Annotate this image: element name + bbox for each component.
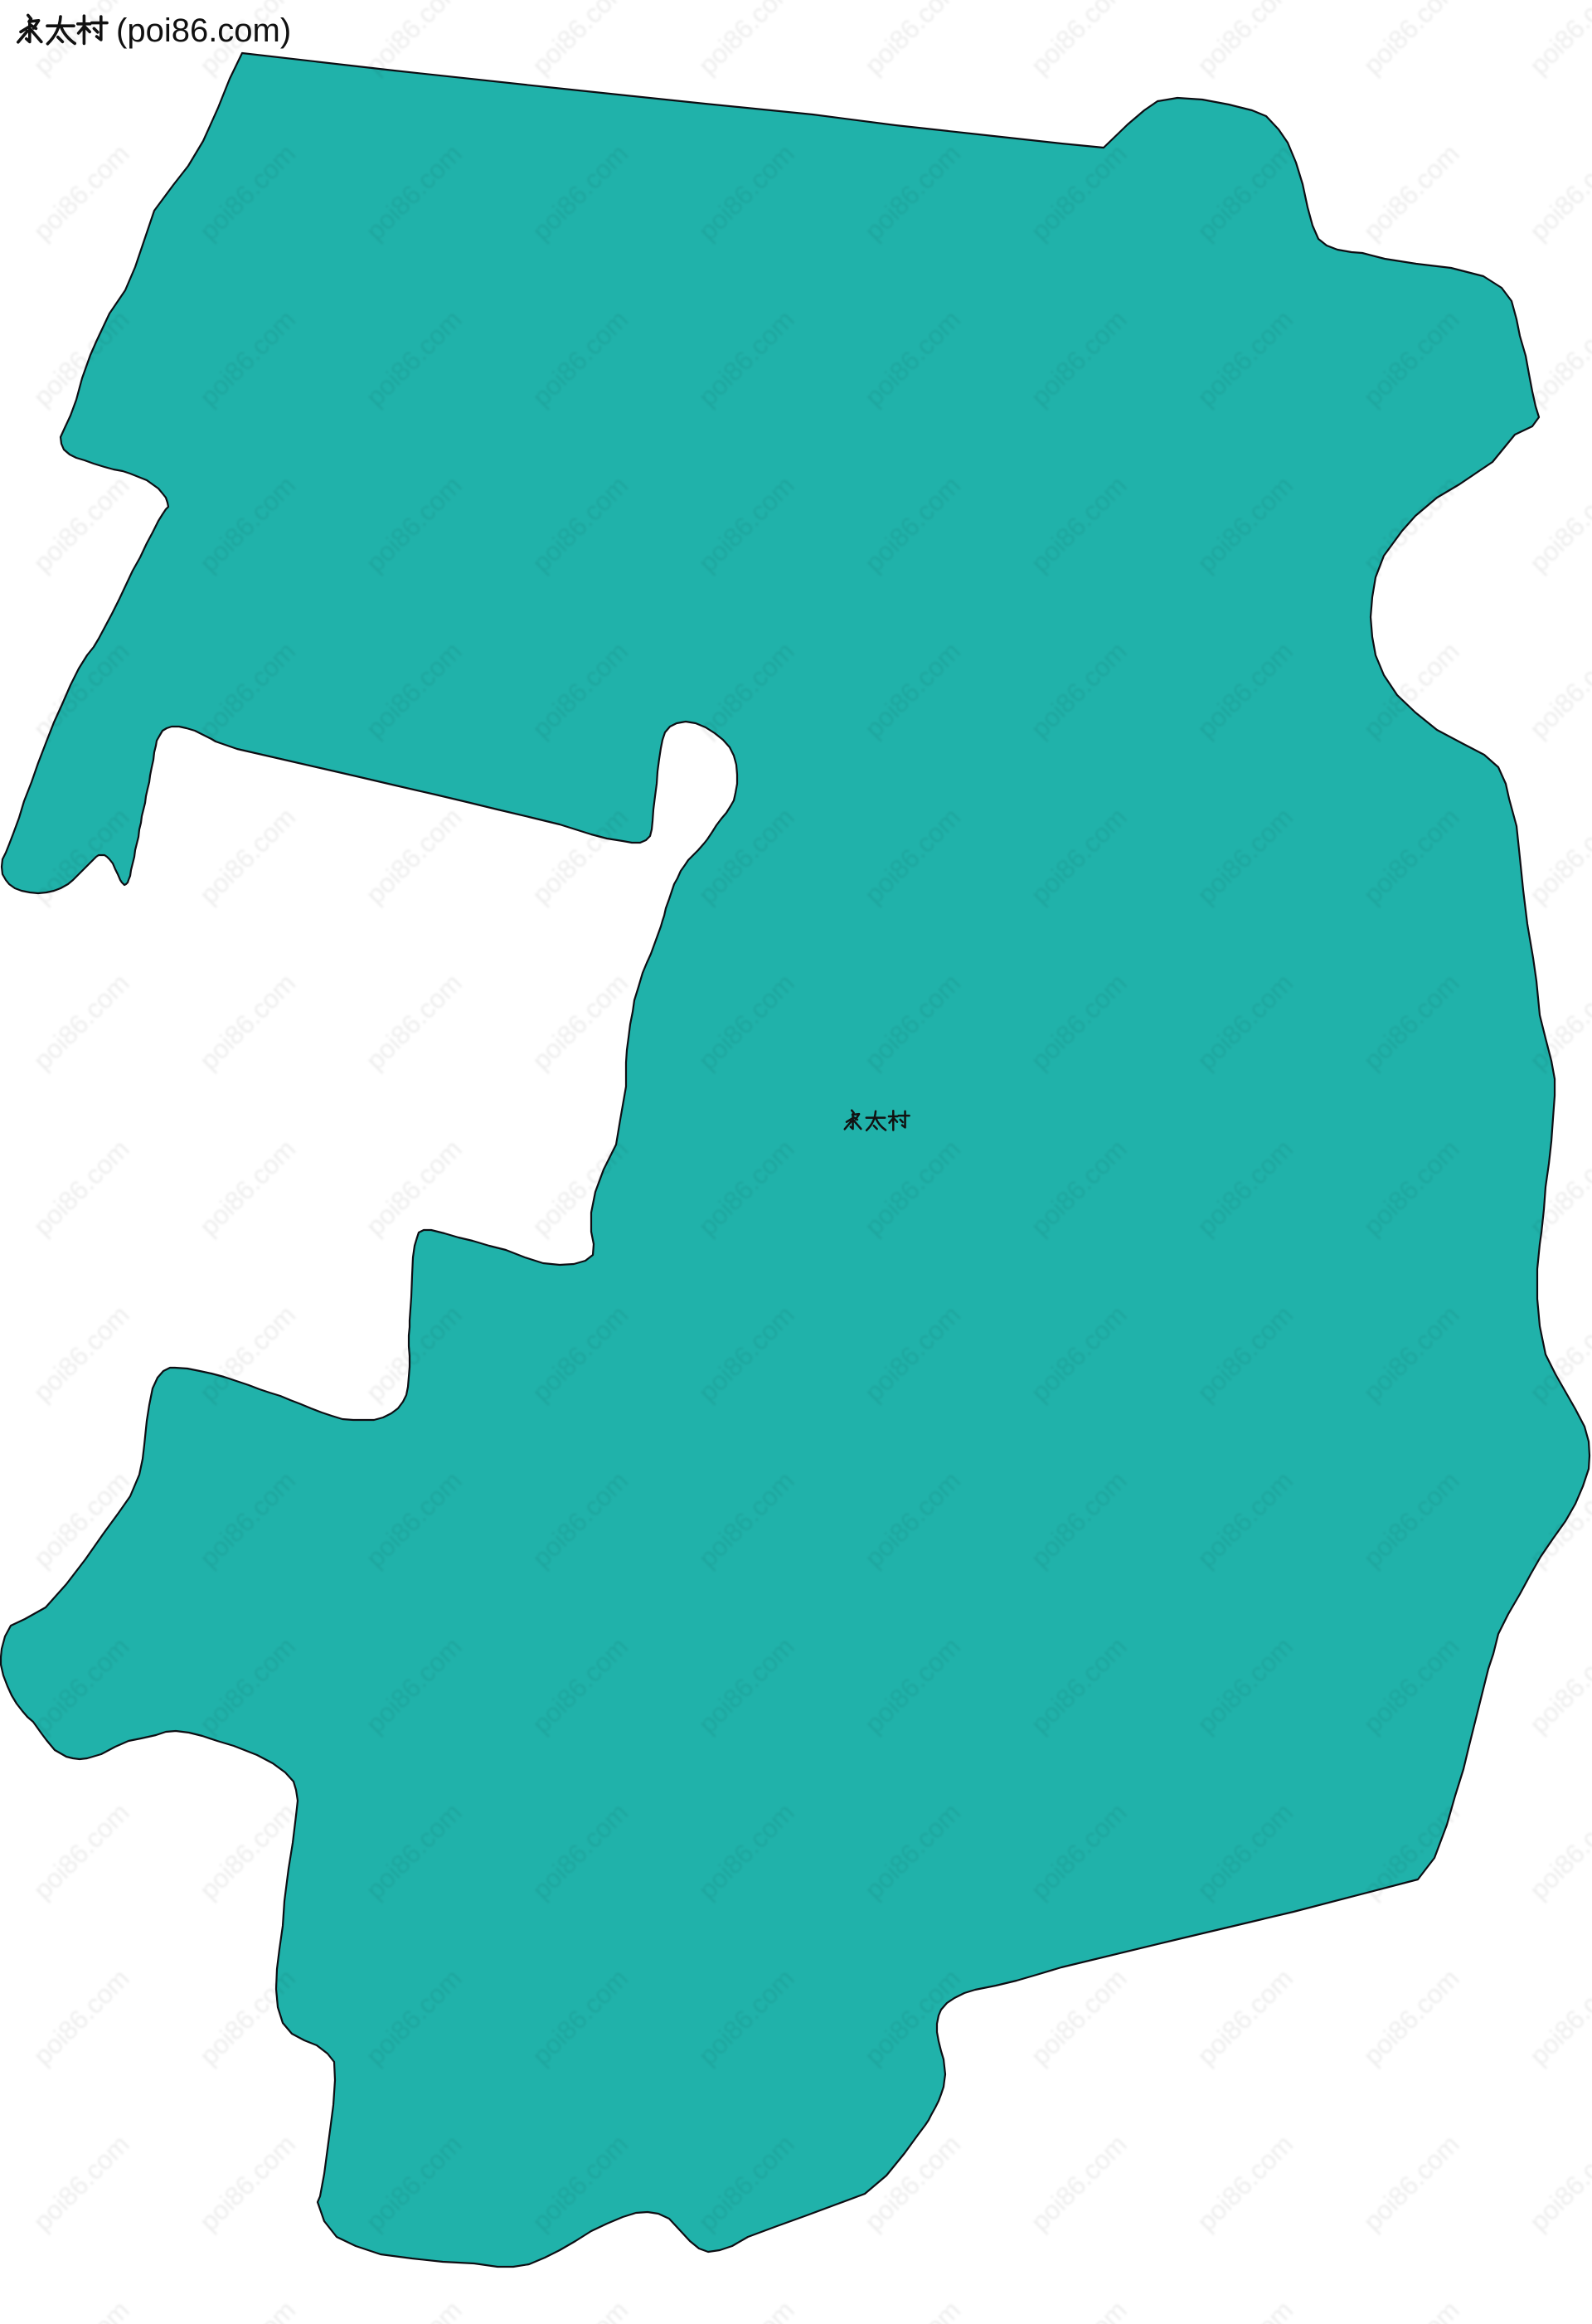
svg-text:(poi86.com): (poi86.com)	[116, 12, 291, 49]
